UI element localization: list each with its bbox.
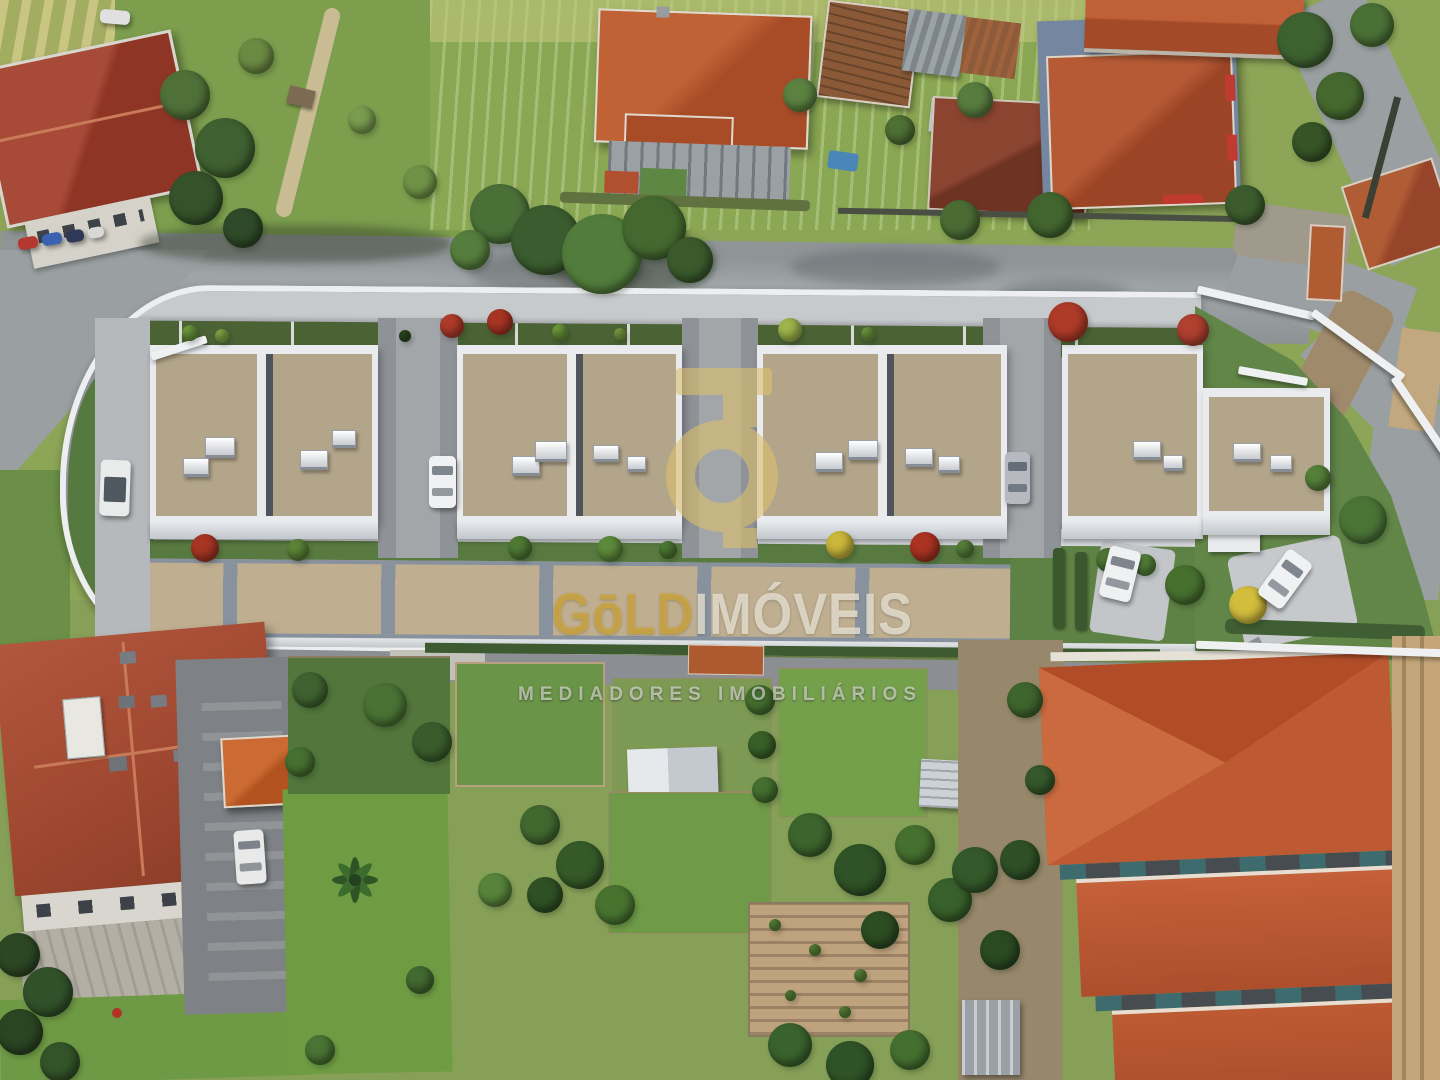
gold-o-macron-ring-logo-icon bbox=[640, 360, 810, 560]
tree bbox=[895, 825, 935, 865]
perimeter-wall-segment bbox=[1197, 286, 1316, 321]
tree bbox=[809, 944, 821, 956]
tree bbox=[305, 1035, 335, 1065]
car bbox=[87, 226, 105, 240]
logo-stem-bottom bbox=[723, 528, 757, 548]
car bbox=[17, 235, 39, 250]
tree bbox=[527, 877, 563, 913]
tree bbox=[287, 539, 309, 561]
tree bbox=[348, 106, 376, 134]
tree bbox=[667, 237, 713, 283]
roof-vent bbox=[905, 448, 933, 467]
roof-vent bbox=[535, 441, 567, 462]
tree bbox=[285, 747, 315, 777]
car bbox=[233, 829, 267, 885]
tree bbox=[957, 82, 993, 118]
tree bbox=[748, 731, 776, 759]
roof-vent bbox=[1133, 441, 1161, 460]
tree bbox=[195, 118, 255, 178]
tree bbox=[520, 805, 560, 845]
logo-macron-bar bbox=[676, 368, 772, 395]
tree bbox=[1316, 72, 1364, 120]
tree bbox=[940, 200, 980, 240]
tree bbox=[23, 967, 73, 1017]
tree bbox=[1048, 302, 1088, 342]
tree bbox=[0, 1009, 43, 1055]
tree bbox=[1305, 465, 1331, 491]
roof-vent bbox=[300, 450, 328, 470]
roof-vent bbox=[848, 440, 878, 460]
tree bbox=[1177, 314, 1209, 346]
tree bbox=[839, 1006, 851, 1018]
logo-ring bbox=[666, 420, 778, 532]
tree bbox=[910, 532, 940, 562]
tree bbox=[788, 813, 832, 857]
tree bbox=[478, 873, 512, 907]
car bbox=[99, 459, 131, 516]
tree bbox=[980, 930, 1020, 970]
tree bbox=[1277, 12, 1333, 68]
tree bbox=[1225, 185, 1265, 225]
tree bbox=[826, 531, 854, 559]
tree bbox=[440, 314, 464, 338]
tree bbox=[861, 327, 875, 341]
roof-vent bbox=[593, 445, 619, 462]
tree bbox=[1350, 3, 1394, 47]
tree bbox=[191, 534, 219, 562]
tree bbox=[785, 990, 796, 1001]
tree bbox=[556, 841, 604, 889]
roof-vent bbox=[815, 452, 843, 472]
tree bbox=[508, 536, 532, 560]
car bbox=[1005, 452, 1030, 504]
roof-vent bbox=[1163, 455, 1183, 471]
tree bbox=[769, 919, 781, 931]
roof-vent bbox=[1270, 455, 1292, 472]
roof-vent bbox=[938, 456, 960, 473]
tree bbox=[885, 115, 915, 145]
tree bbox=[160, 70, 210, 120]
tree bbox=[169, 171, 223, 225]
tree bbox=[768, 1023, 812, 1067]
tree bbox=[826, 1041, 874, 1080]
tree bbox=[182, 325, 198, 341]
brand-watermark: GōLDIMÓVEIS bbox=[99, 581, 1366, 648]
tree bbox=[412, 722, 452, 762]
tree bbox=[487, 309, 513, 335]
tree bbox=[854, 969, 867, 982]
tree bbox=[595, 885, 635, 925]
perimeter-wall-segment bbox=[1310, 309, 1405, 381]
tree bbox=[1292, 122, 1332, 162]
roof-vent bbox=[332, 430, 356, 448]
tree bbox=[597, 536, 623, 562]
tree bbox=[403, 165, 437, 199]
tree bbox=[40, 1042, 80, 1080]
roof-vent bbox=[205, 437, 235, 458]
car bbox=[429, 456, 456, 508]
tree bbox=[552, 324, 568, 340]
tree bbox=[238, 38, 274, 74]
tree bbox=[223, 208, 263, 248]
tree bbox=[861, 911, 899, 949]
car bbox=[65, 229, 85, 244]
tree bbox=[450, 230, 490, 270]
tree bbox=[1025, 765, 1055, 795]
tree bbox=[1000, 840, 1040, 880]
tree bbox=[956, 540, 974, 558]
tree bbox=[614, 328, 626, 340]
roof-vent bbox=[183, 458, 209, 477]
tree bbox=[783, 78, 817, 112]
tagline-watermark: MEDIADORES IMOBILIÁRIOS bbox=[0, 684, 1440, 706]
tree bbox=[1339, 496, 1387, 544]
brand-gold-text: GōLD bbox=[552, 582, 694, 647]
tree bbox=[834, 844, 886, 896]
tree bbox=[890, 1030, 930, 1070]
tree bbox=[952, 847, 998, 893]
tree bbox=[752, 777, 778, 803]
brand-rest-text: IMÓVEIS bbox=[694, 582, 913, 647]
tree bbox=[406, 966, 434, 994]
roof-vent bbox=[1233, 443, 1261, 462]
car bbox=[99, 9, 130, 26]
aerial-real-estate-render: GōLDIMÓVEIS MEDIADORES IMOBILIÁRIOS bbox=[0, 0, 1440, 1080]
tree bbox=[399, 330, 411, 342]
perimeter-wall-segment bbox=[1391, 375, 1440, 462]
tree bbox=[778, 318, 802, 342]
tree bbox=[215, 329, 229, 343]
tree bbox=[1027, 192, 1073, 238]
car bbox=[41, 231, 63, 246]
